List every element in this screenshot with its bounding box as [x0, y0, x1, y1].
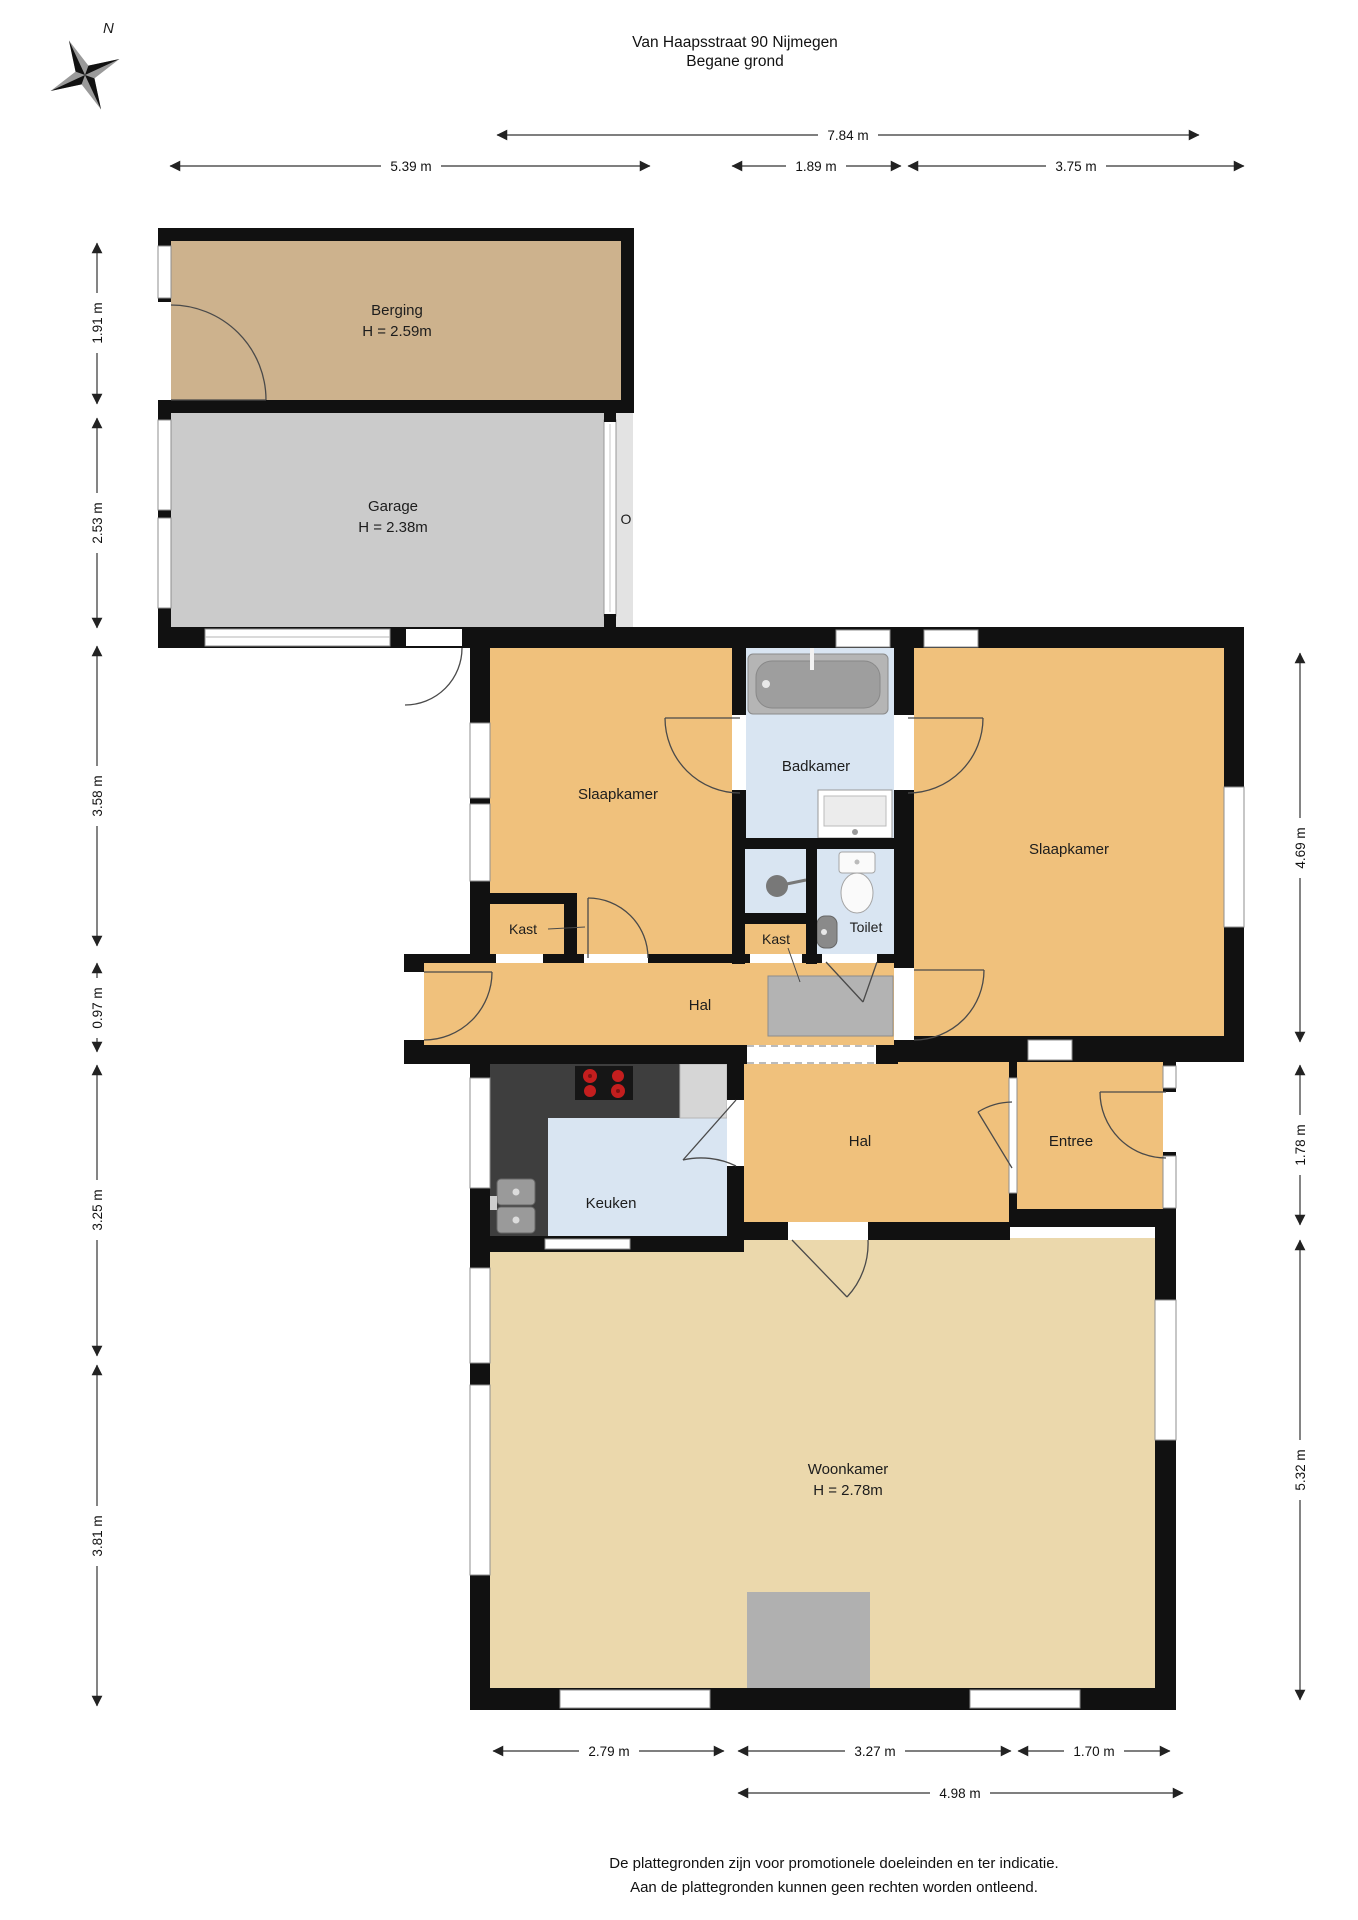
stove-icon	[575, 1066, 633, 1100]
washbasin-drain	[852, 829, 858, 835]
badkamer-label: Badkamer	[782, 758, 850, 775]
front-door-gap	[404, 972, 424, 1040]
wall-segment	[604, 614, 616, 628]
wall-segment	[1009, 1209, 1176, 1227]
window	[158, 246, 171, 298]
page-title: Van Haapsstraat 90 Nijmegen	[632, 34, 838, 51]
open-passage	[747, 1045, 876, 1064]
kast-left-label: Kast	[509, 921, 537, 937]
door-gap	[158, 302, 171, 400]
dimension-label: 5.32 m	[1293, 1449, 1308, 1490]
dim-label-group: 4.69 m	[1291, 818, 1309, 878]
dim-label-group: 3.81 m	[88, 1506, 106, 1566]
dimension-label: 7.84 m	[827, 128, 868, 143]
wall-segment	[1009, 1062, 1017, 1078]
window	[1224, 787, 1244, 927]
wall-segment	[744, 1222, 1010, 1240]
wall-segment	[745, 913, 806, 924]
window	[470, 804, 490, 881]
berging-floor	[171, 241, 621, 401]
bathtub-inner	[756, 661, 880, 708]
woonkamer-height: H = 2.78m	[813, 1482, 883, 1499]
window	[836, 630, 890, 647]
dimension-label: 1.70 m	[1073, 1744, 1114, 1759]
dim-label-group: 1.78 m	[1291, 1115, 1309, 1175]
window	[470, 1385, 490, 1575]
window	[158, 518, 171, 608]
dimension-label: 1.91 m	[90, 302, 105, 343]
dimension-label: 3.25 m	[90, 1189, 105, 1230]
wall-segment	[158, 228, 634, 241]
wall-segment	[732, 838, 745, 964]
dimension-label: 1.78 m	[1293, 1124, 1308, 1165]
dim-label-group: 5.32 m	[1291, 1440, 1309, 1500]
hal-lower-label: Hal	[849, 1133, 872, 1150]
compass-star-icon	[35, 25, 136, 126]
dimension-label: 5.39 m	[390, 159, 431, 174]
window	[545, 1239, 630, 1249]
door-gap	[584, 954, 648, 963]
washbasin-bowl	[824, 796, 886, 826]
window	[470, 723, 490, 798]
woonkamer-mat	[747, 1592, 870, 1688]
hal-doormat	[768, 976, 893, 1036]
dimension-label: 4.69 m	[1293, 827, 1308, 868]
door-swing	[405, 648, 462, 705]
floorplan-page: Berging H = 2.59m Garage H = 2.38m Slaap…	[0, 0, 1358, 1920]
wall-segment	[732, 838, 914, 849]
faucet-icon	[489, 1196, 497, 1210]
window	[560, 1690, 710, 1708]
dim-label-group: 3.58 m	[88, 766, 106, 826]
door-gap	[788, 1222, 868, 1240]
wall-segment	[1009, 1193, 1017, 1209]
kitchen-appliance	[680, 1064, 727, 1118]
burner-center	[588, 1074, 592, 1078]
wall-segment	[806, 838, 817, 964]
page-subtitle: Begane grond	[686, 53, 783, 70]
front-door-gap	[1163, 1092, 1176, 1152]
slaapkamer-right-label: Slaapkamer	[1029, 841, 1109, 858]
entree-label: Entree	[1049, 1133, 1093, 1150]
garage-side-door-marker: O	[621, 511, 632, 527]
window	[1163, 1066, 1176, 1088]
wall-segment	[158, 400, 634, 413]
door-gap	[822, 954, 877, 963]
dim-label-group: 0.97 m	[88, 978, 106, 1038]
kast-middle-label: Kast	[762, 931, 790, 947]
dim-label-group: 1.91 m	[88, 293, 106, 353]
dim-label-group: 3.25 m	[88, 1180, 106, 1240]
hal-upper-label: Hal	[689, 997, 712, 1014]
door-gap	[496, 954, 543, 963]
berging-label: Berging	[371, 302, 423, 319]
door-gap	[727, 1100, 744, 1166]
keuken-label: Keuken	[586, 1195, 637, 1212]
dim-label-group: 2.53 m	[88, 493, 106, 553]
door-gap	[894, 715, 914, 790]
drain-icon	[513, 1189, 520, 1196]
berging-height: H = 2.59m	[362, 323, 432, 340]
dimension-label: 3.81 m	[90, 1515, 105, 1556]
footer-disclaimer-line1: De plattegronden zijn voor promotionele …	[609, 1855, 1058, 1872]
garage-label: Garage	[368, 498, 418, 515]
woonkamer-label: Woonkamer	[808, 1461, 889, 1478]
burner-center	[616, 1089, 620, 1093]
compass-rose: N	[35, 20, 136, 125]
window	[1028, 1040, 1072, 1060]
garage-height: H = 2.38m	[358, 519, 428, 536]
burner-icon	[612, 1070, 624, 1082]
slaapkamer-left-label: Slaapkamer	[578, 786, 658, 803]
dimension-label: 0.97 m	[90, 987, 105, 1028]
door-gap	[406, 629, 462, 646]
burner-icon	[584, 1085, 596, 1097]
compass-north-label: N	[103, 20, 114, 37]
toilet-sink-drain	[821, 929, 827, 935]
dimension-label: 1.89 m	[795, 159, 836, 174]
wall-segment	[621, 241, 634, 413]
dimension-label: 2.79 m	[588, 1744, 629, 1759]
door-gap	[732, 715, 746, 790]
window	[970, 1690, 1080, 1708]
glazed-partition	[1009, 1078, 1017, 1193]
footer-disclaimer-line2: Aan de plattegronden kunnen geen rechten…	[630, 1879, 1038, 1896]
bathtub-drain	[762, 680, 770, 688]
window	[1163, 1156, 1176, 1208]
window	[924, 630, 978, 647]
room-fills	[171, 241, 1224, 1690]
dimension-label: 3.58 m	[90, 775, 105, 816]
window	[158, 420, 171, 510]
window	[1155, 1300, 1176, 1440]
dimension-label: 2.53 m	[90, 502, 105, 543]
dimension-label: 3.27 m	[854, 1744, 895, 1759]
hal-lower-floor	[744, 1062, 1009, 1224]
wall-segment	[470, 893, 577, 904]
toilet-button	[855, 860, 860, 865]
dimension-label: 3.75 m	[1055, 159, 1096, 174]
floorplan-drawing: Berging H = 2.59m Garage H = 2.38m Slaap…	[0, 0, 1358, 1920]
toilet-label: Toilet	[850, 919, 883, 935]
toilet-bowl-icon	[841, 873, 873, 913]
wall-segment	[604, 411, 616, 422]
dimension-label: 4.98 m	[939, 1786, 980, 1801]
drain-icon	[513, 1217, 520, 1224]
window	[470, 1078, 490, 1188]
wall-segment	[1155, 1225, 1176, 1710]
door-gap	[750, 954, 802, 963]
window	[470, 1268, 490, 1363]
door-gap	[894, 968, 914, 1040]
